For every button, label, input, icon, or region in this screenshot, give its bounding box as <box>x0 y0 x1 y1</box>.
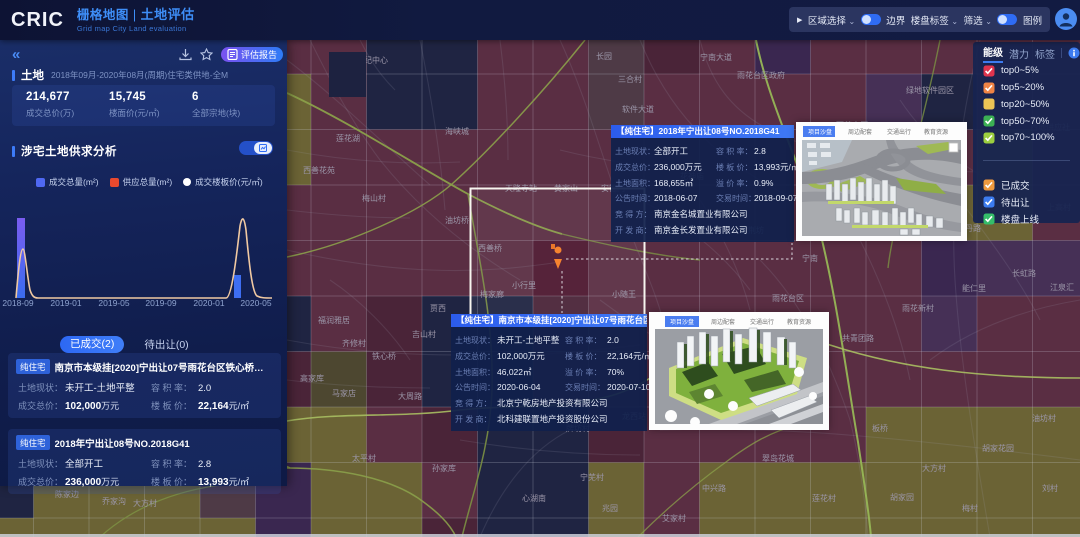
svg-text:莲花湖: 莲花湖 <box>336 133 360 143</box>
svg-text:铁心桥: 铁心桥 <box>372 351 396 361</box>
svg-text:周边配套: 周边配套 <box>711 318 735 326</box>
svg-text:2019-05: 2019-05 <box>98 298 129 308</box>
svg-text:胡家花园: 胡家花园 <box>982 443 1014 453</box>
svg-text:宁南大道: 宁南大道 <box>700 52 732 62</box>
svg-text:雨花台区政府: 雨花台区政府 <box>737 70 785 80</box>
svg-text:大方村: 大方村 <box>133 498 157 508</box>
svg-text:雨花新村: 雨花新村 <box>902 303 934 313</box>
svg-text:软件大道: 软件大道 <box>622 104 654 114</box>
svg-text:周边配套: 周边配套 <box>848 128 872 136</box>
svg-text:2019-01: 2019-01 <box>50 298 81 308</box>
svg-text:兆园: 兆园 <box>602 503 618 513</box>
svg-text:板桥: 板桥 <box>872 423 888 433</box>
svg-text:贾西: 贾西 <box>430 304 446 313</box>
svg-text:大周路: 大周路 <box>398 391 422 401</box>
svg-text:项目沙盘: 项目沙盘 <box>808 128 832 136</box>
svg-text:吉山村: 吉山村 <box>412 329 436 339</box>
svg-text:梅山村: 梅山村 <box>362 193 386 203</box>
svg-text:项目沙盘: 项目沙盘 <box>670 318 694 326</box>
svg-text:艾家村: 艾家村 <box>662 513 686 523</box>
svg-text:绿地软件园区: 绿地软件园区 <box>906 85 954 95</box>
svg-text:胡家园: 胡家园 <box>890 492 914 502</box>
svg-text:交通出行: 交通出行 <box>750 318 774 326</box>
svg-text:莲花村: 莲花村 <box>812 493 836 503</box>
svg-text:马家店: 马家店 <box>332 388 356 398</box>
svg-text:大方村: 大方村 <box>922 463 946 473</box>
svg-text:交通出行: 交通出行 <box>887 128 911 136</box>
svg-text:海峡城: 海峡城 <box>445 126 469 136</box>
svg-text:江泉汇: 江泉汇 <box>1050 282 1074 292</box>
svg-text:2018-09: 2018-09 <box>2 298 33 308</box>
svg-text:孙家库: 孙家库 <box>432 463 456 473</box>
svg-text:油坊村: 油坊村 <box>1032 413 1056 423</box>
svg-text:共青团路: 共青团路 <box>842 333 874 343</box>
svg-text:三合村: 三合村 <box>618 74 642 84</box>
svg-text:高家库: 高家库 <box>300 373 324 383</box>
svg-text:宁芜村: 宁芜村 <box>580 472 604 482</box>
svg-text:乔家沟: 乔家沟 <box>102 496 126 506</box>
svg-text:能仁里: 能仁里 <box>962 283 986 293</box>
svg-text:宁南: 宁南 <box>802 253 818 263</box>
svg-text:齐修村: 齐修村 <box>342 338 366 348</box>
svg-text:福润雅居: 福润雅居 <box>318 315 350 325</box>
svg-text:教育资源: 教育资源 <box>787 318 811 326</box>
svg-text:梅村: 梅村 <box>962 503 978 513</box>
svg-text:2020-05: 2020-05 <box>240 298 271 308</box>
svg-text:太平村: 太平村 <box>352 453 376 463</box>
svg-text:油坊桥: 油坊桥 <box>445 215 469 225</box>
svg-text:雨花台区: 雨花台区 <box>772 293 804 303</box>
svg-text:翠岛花城: 翠岛花城 <box>762 453 794 463</box>
svg-text:西善花苑: 西善花苑 <box>303 165 335 175</box>
svg-text:2020-01: 2020-01 <box>193 298 224 308</box>
svg-text:长虹路: 长虹路 <box>1012 268 1036 278</box>
svg-text:中兴路: 中兴路 <box>702 483 726 493</box>
svg-text:刘村: 刘村 <box>1042 483 1058 493</box>
svg-text:教育资源: 教育资源 <box>924 128 948 136</box>
svg-text:心湖南: 心湖南 <box>522 493 546 503</box>
svg-text:2019-09: 2019-09 <box>145 298 176 308</box>
svg-text:长园: 长园 <box>596 51 612 61</box>
